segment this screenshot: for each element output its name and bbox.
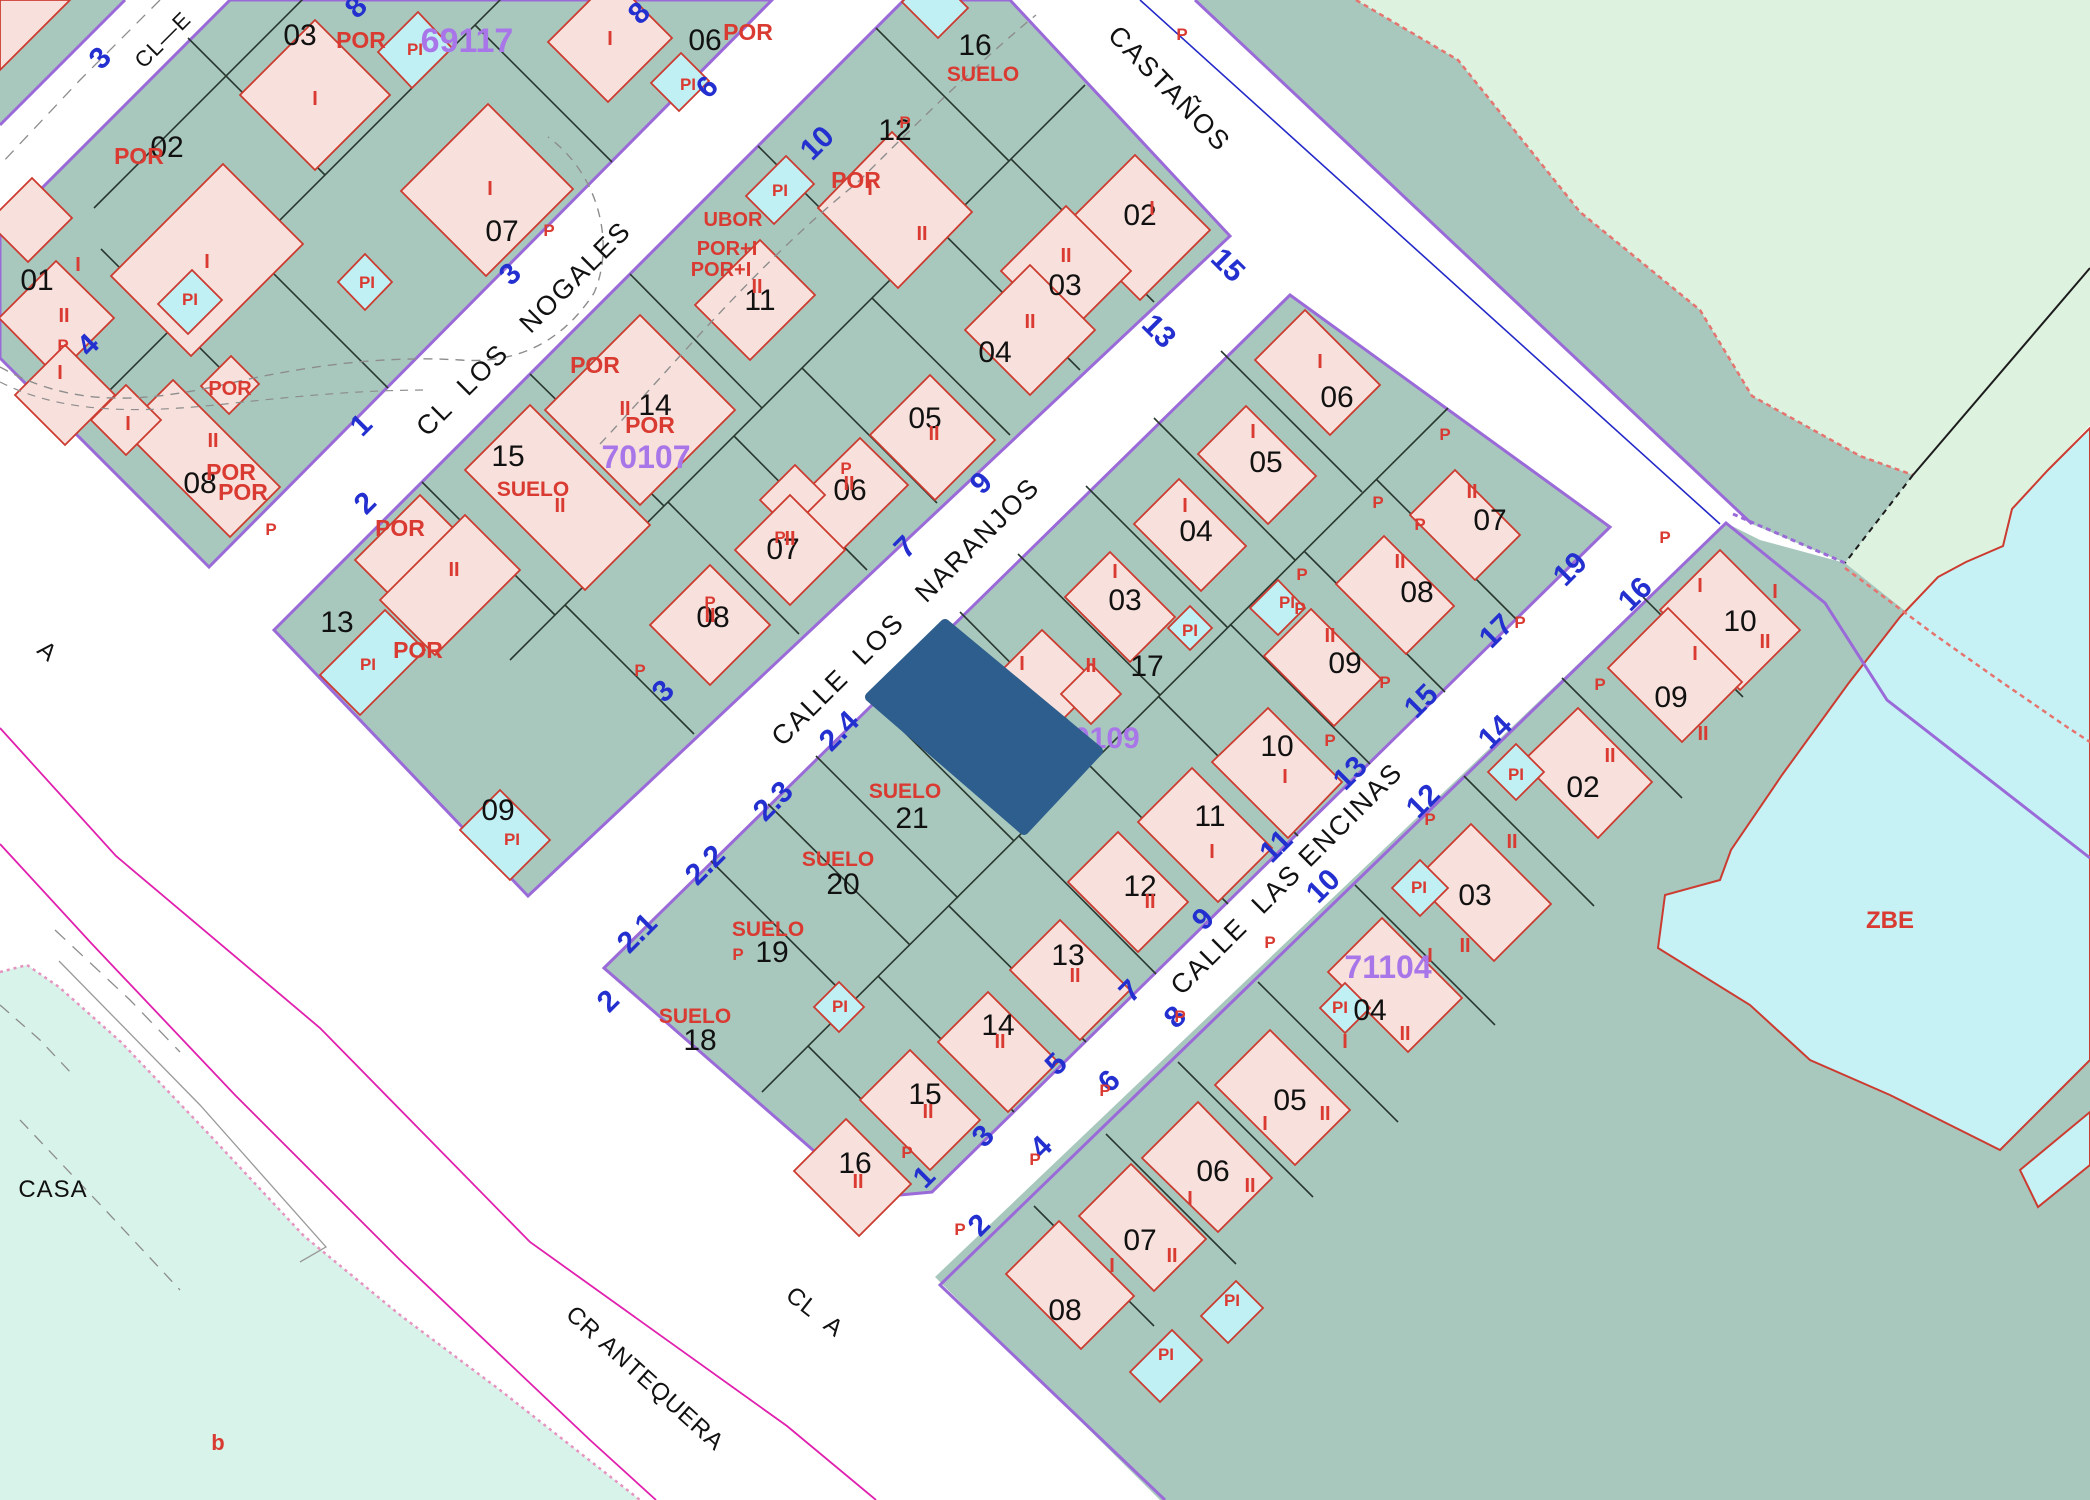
svg-text:P: P [1414,515,1425,534]
svg-text:SUELO: SUELO [659,1005,731,1028]
svg-text:II: II [1244,1175,1255,1197]
svg-text:P: P [704,593,715,612]
svg-text:II: II [207,430,218,452]
svg-text:09: 09 [1654,681,1687,714]
svg-text:CASA: CASA [18,1176,87,1203]
svg-text:02: 02 [1566,771,1599,804]
svg-text:PI: PI [1332,998,1348,1017]
svg-text:PI: PI [1411,878,1427,897]
svg-text:09: 09 [481,794,514,827]
svg-text:I: I [607,28,613,50]
svg-text:I: I [312,88,318,110]
svg-text:71104: 71104 [1344,949,1431,985]
svg-text:I: I [1182,495,1188,517]
svg-text:P: P [1264,933,1275,952]
svg-text:11: 11 [1194,800,1225,833]
svg-text:I: I [1692,643,1698,665]
svg-text:POR+I: POR+I [697,238,758,260]
svg-text:04: 04 [978,336,1011,369]
svg-text:SUELO: SUELO [732,918,804,941]
svg-text:03: 03 [283,19,316,52]
svg-text:I: I [487,178,493,200]
svg-text:P: P [1439,425,1450,444]
svg-text:06: 06 [1320,381,1353,414]
svg-text:09: 09 [1328,647,1361,680]
svg-text:I: I [125,413,131,435]
svg-text:I: I [1262,1113,1268,1135]
svg-text:POR: POR [723,19,773,45]
svg-text:I: I [1187,1188,1193,1210]
svg-text:II: II [916,223,927,245]
svg-text:II: II [554,495,565,517]
svg-text:07: 07 [485,215,518,248]
svg-text:POR: POR [831,167,881,193]
svg-text:04: 04 [1353,994,1386,1027]
svg-text:P: P [1324,731,1335,750]
svg-text:I: I [1697,575,1703,597]
svg-text:II: II [852,1171,863,1193]
svg-text:II: II [1604,745,1615,767]
svg-text:P: P [1379,673,1390,692]
svg-text:PI: PI [359,273,375,292]
svg-text:ZBE: ZBE [1866,907,1914,934]
svg-text:POR: POR [570,352,620,378]
svg-text:PI: PI [832,997,848,1016]
svg-text:II: II [1394,551,1405,573]
svg-text:P: P [1296,565,1307,584]
svg-text:II: II [1060,245,1071,267]
svg-text:P: P [634,661,645,680]
svg-text:10: 10 [1260,730,1293,763]
svg-text:18: 18 [683,1024,716,1057]
svg-text:PI: PI [407,40,423,59]
svg-text:I: I [1209,841,1215,863]
svg-text:07: 07 [1473,504,1506,537]
svg-text:P: P [1174,1007,1185,1026]
svg-text:II: II [1319,1103,1330,1125]
svg-text:II: II [1466,481,1477,503]
svg-text:I: I [1772,581,1778,603]
svg-text:03: 03 [1458,879,1491,912]
svg-text:POR: POR [625,412,675,438]
svg-text:II: II [448,559,459,581]
svg-text:POR+I: POR+I [691,259,752,281]
svg-text:II: II [1085,655,1096,677]
svg-text:II: II [1166,1245,1177,1267]
svg-text:P: P [1294,599,1305,618]
svg-text:08: 08 [1400,576,1433,609]
svg-text:I: I [57,362,63,384]
svg-text:P: P [899,113,910,132]
svg-text:PI: PI [1182,621,1198,640]
svg-text:I: I [1149,198,1155,220]
svg-text:P: P [1372,493,1383,512]
svg-text:P: P [1659,528,1670,547]
svg-text:POR: POR [114,143,164,169]
svg-text:I: I [1250,421,1256,443]
svg-text:I: I [1282,766,1288,788]
svg-text:II: II [751,276,762,298]
svg-text:I: I [1109,1255,1115,1277]
svg-text:II: II [58,305,69,327]
svg-text:P: P [1099,1081,1110,1100]
svg-text:P: P [543,221,554,240]
svg-text:PI: PI [1224,1291,1240,1310]
svg-text:I: I [1427,945,1433,967]
svg-text:08: 08 [1048,1294,1081,1327]
svg-text:16: 16 [958,29,991,62]
svg-text:PI: PI [772,181,788,200]
svg-text:II: II [922,1101,933,1123]
svg-text:69117: 69117 [421,22,514,60]
svg-text:P: P [1029,1150,1040,1169]
svg-text:II: II [1759,631,1770,653]
svg-text:PI: PI [680,75,696,94]
svg-text:05: 05 [1273,1084,1306,1117]
svg-text:P: P [57,336,68,355]
svg-text:17: 17 [1130,650,1163,683]
svg-text:II: II [619,398,630,420]
svg-text:07: 07 [1123,1224,1156,1257]
svg-text:I: I [1019,653,1025,675]
svg-text:II: II [1324,625,1335,647]
svg-text:P: P [901,1143,912,1162]
svg-text:04: 04 [1179,515,1212,548]
svg-text:P: P [774,528,785,547]
svg-text:P: P [954,1220,965,1239]
svg-text:UBOR: UBOR [704,209,763,231]
svg-text:SUELO: SUELO [947,63,1019,86]
svg-text:P: P [265,520,276,539]
svg-text:II: II [784,528,795,550]
svg-text:POR: POR [375,515,425,541]
svg-text:PI: PI [1158,1345,1174,1364]
svg-text:15: 15 [491,440,524,473]
svg-text:06: 06 [688,24,721,57]
svg-text:03: 03 [1108,584,1141,617]
svg-text:II: II [1024,311,1035,333]
svg-text:I: I [1317,351,1323,373]
svg-text:II: II [1459,935,1470,957]
svg-text:II: II [1069,965,1080,987]
svg-text:II: II [994,1031,1005,1053]
svg-text:21: 21 [895,802,928,835]
svg-text:06: 06 [1196,1155,1229,1188]
svg-text:P: P [339,0,350,4]
svg-text:I: I [204,251,210,273]
svg-text:P: P [840,459,851,478]
svg-text:05: 05 [1249,446,1282,479]
svg-text:01: 01 [20,264,53,297]
svg-text:II: II [928,423,939,445]
svg-text:I: I [1342,1031,1348,1053]
svg-text:70107: 70107 [602,439,691,475]
svg-text:PI: PI [504,830,520,849]
svg-text:P: P [1594,675,1605,694]
svg-text:PI: PI [1508,765,1524,784]
svg-text:b: b [211,1430,224,1455]
svg-text:II: II [1697,723,1708,745]
svg-text:POR: POR [208,378,252,400]
svg-text:POR: POR [393,637,443,663]
svg-text:P: P [1514,613,1525,632]
svg-text:P: P [1176,25,1187,44]
svg-text:SUELO: SUELO [802,848,874,871]
svg-text:P: P [1424,810,1435,829]
svg-text:03: 03 [1048,269,1081,302]
svg-text:PI: PI [360,655,376,674]
svg-text:II: II [1399,1023,1410,1045]
svg-text:I: I [867,178,873,200]
svg-text:10: 10 [1723,605,1756,638]
svg-text:PI: PI [182,290,198,309]
svg-text:20: 20 [826,868,859,901]
svg-text:13: 13 [320,606,353,639]
svg-text:PI: PI [1279,593,1295,612]
svg-text:P: P [732,945,743,964]
svg-text:II: II [1506,831,1517,853]
svg-text:I: I [1112,561,1118,583]
svg-text:POR: POR [218,479,268,505]
svg-text:I: I [75,254,81,276]
svg-text:POR: POR [336,27,386,53]
svg-text:SUELO: SUELO [869,780,941,803]
svg-text:II: II [1144,891,1155,913]
